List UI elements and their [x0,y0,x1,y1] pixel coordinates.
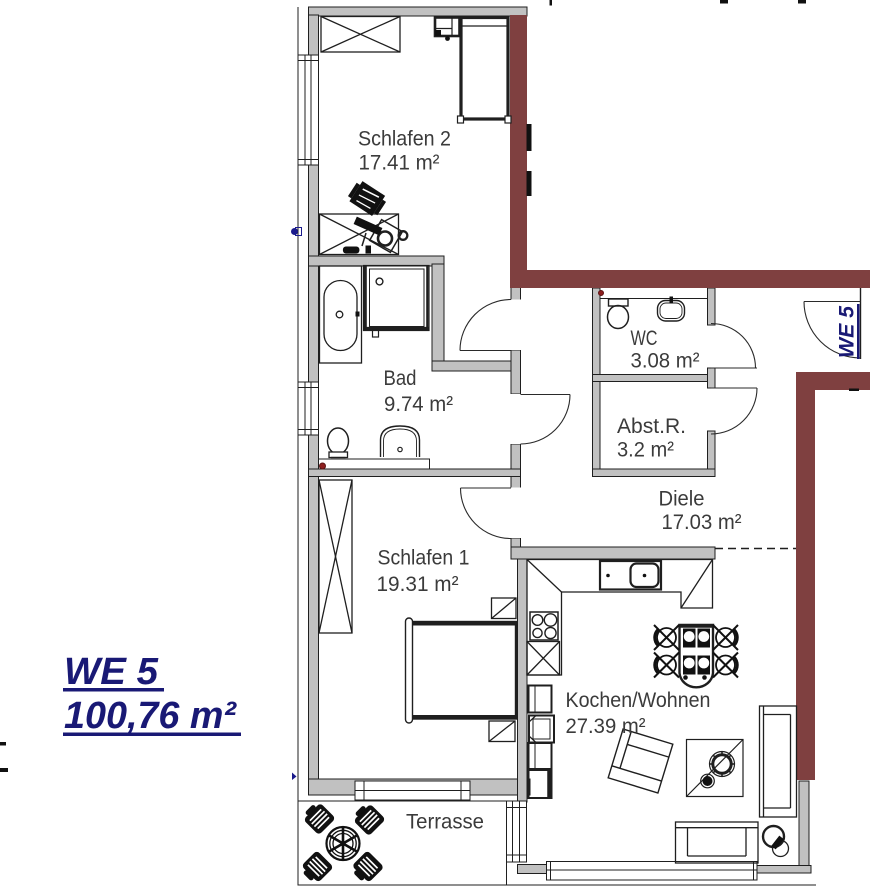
svg-text:WE 5: WE 5 [64,651,159,693]
svg-text:100,76 m²: 100,76 m² [64,695,237,737]
svg-text:WE 5: WE 5 [836,306,859,358]
svg-text:Abst.R.: Abst.R. [617,415,686,438]
svg-text:17.03 m²: 17.03 m² [662,511,742,534]
svg-text:17.41 m²: 17.41 m² [359,152,440,175]
svg-text:9.74 m²: 9.74 m² [384,393,453,416]
svg-text:Schlafen 1: Schlafen 1 [378,547,470,570]
svg-text:19.31 m²: 19.31 m² [377,573,459,596]
svg-text:Diele: Diele [659,488,705,511]
svg-text:Terrasse: Terrasse [406,811,484,834]
svg-text:3.08 m²: 3.08 m² [631,350,700,373]
svg-text:3.2 m²: 3.2 m² [617,439,674,462]
svg-text:Schlafen 2: Schlafen 2 [358,128,451,151]
svg-text:27.39 m²: 27.39 m² [566,715,646,738]
svg-text:Bad: Bad [384,367,417,390]
svg-text:Kochen/Wohnen: Kochen/Wohnen [566,689,711,712]
svg-text:WC: WC [631,327,658,350]
